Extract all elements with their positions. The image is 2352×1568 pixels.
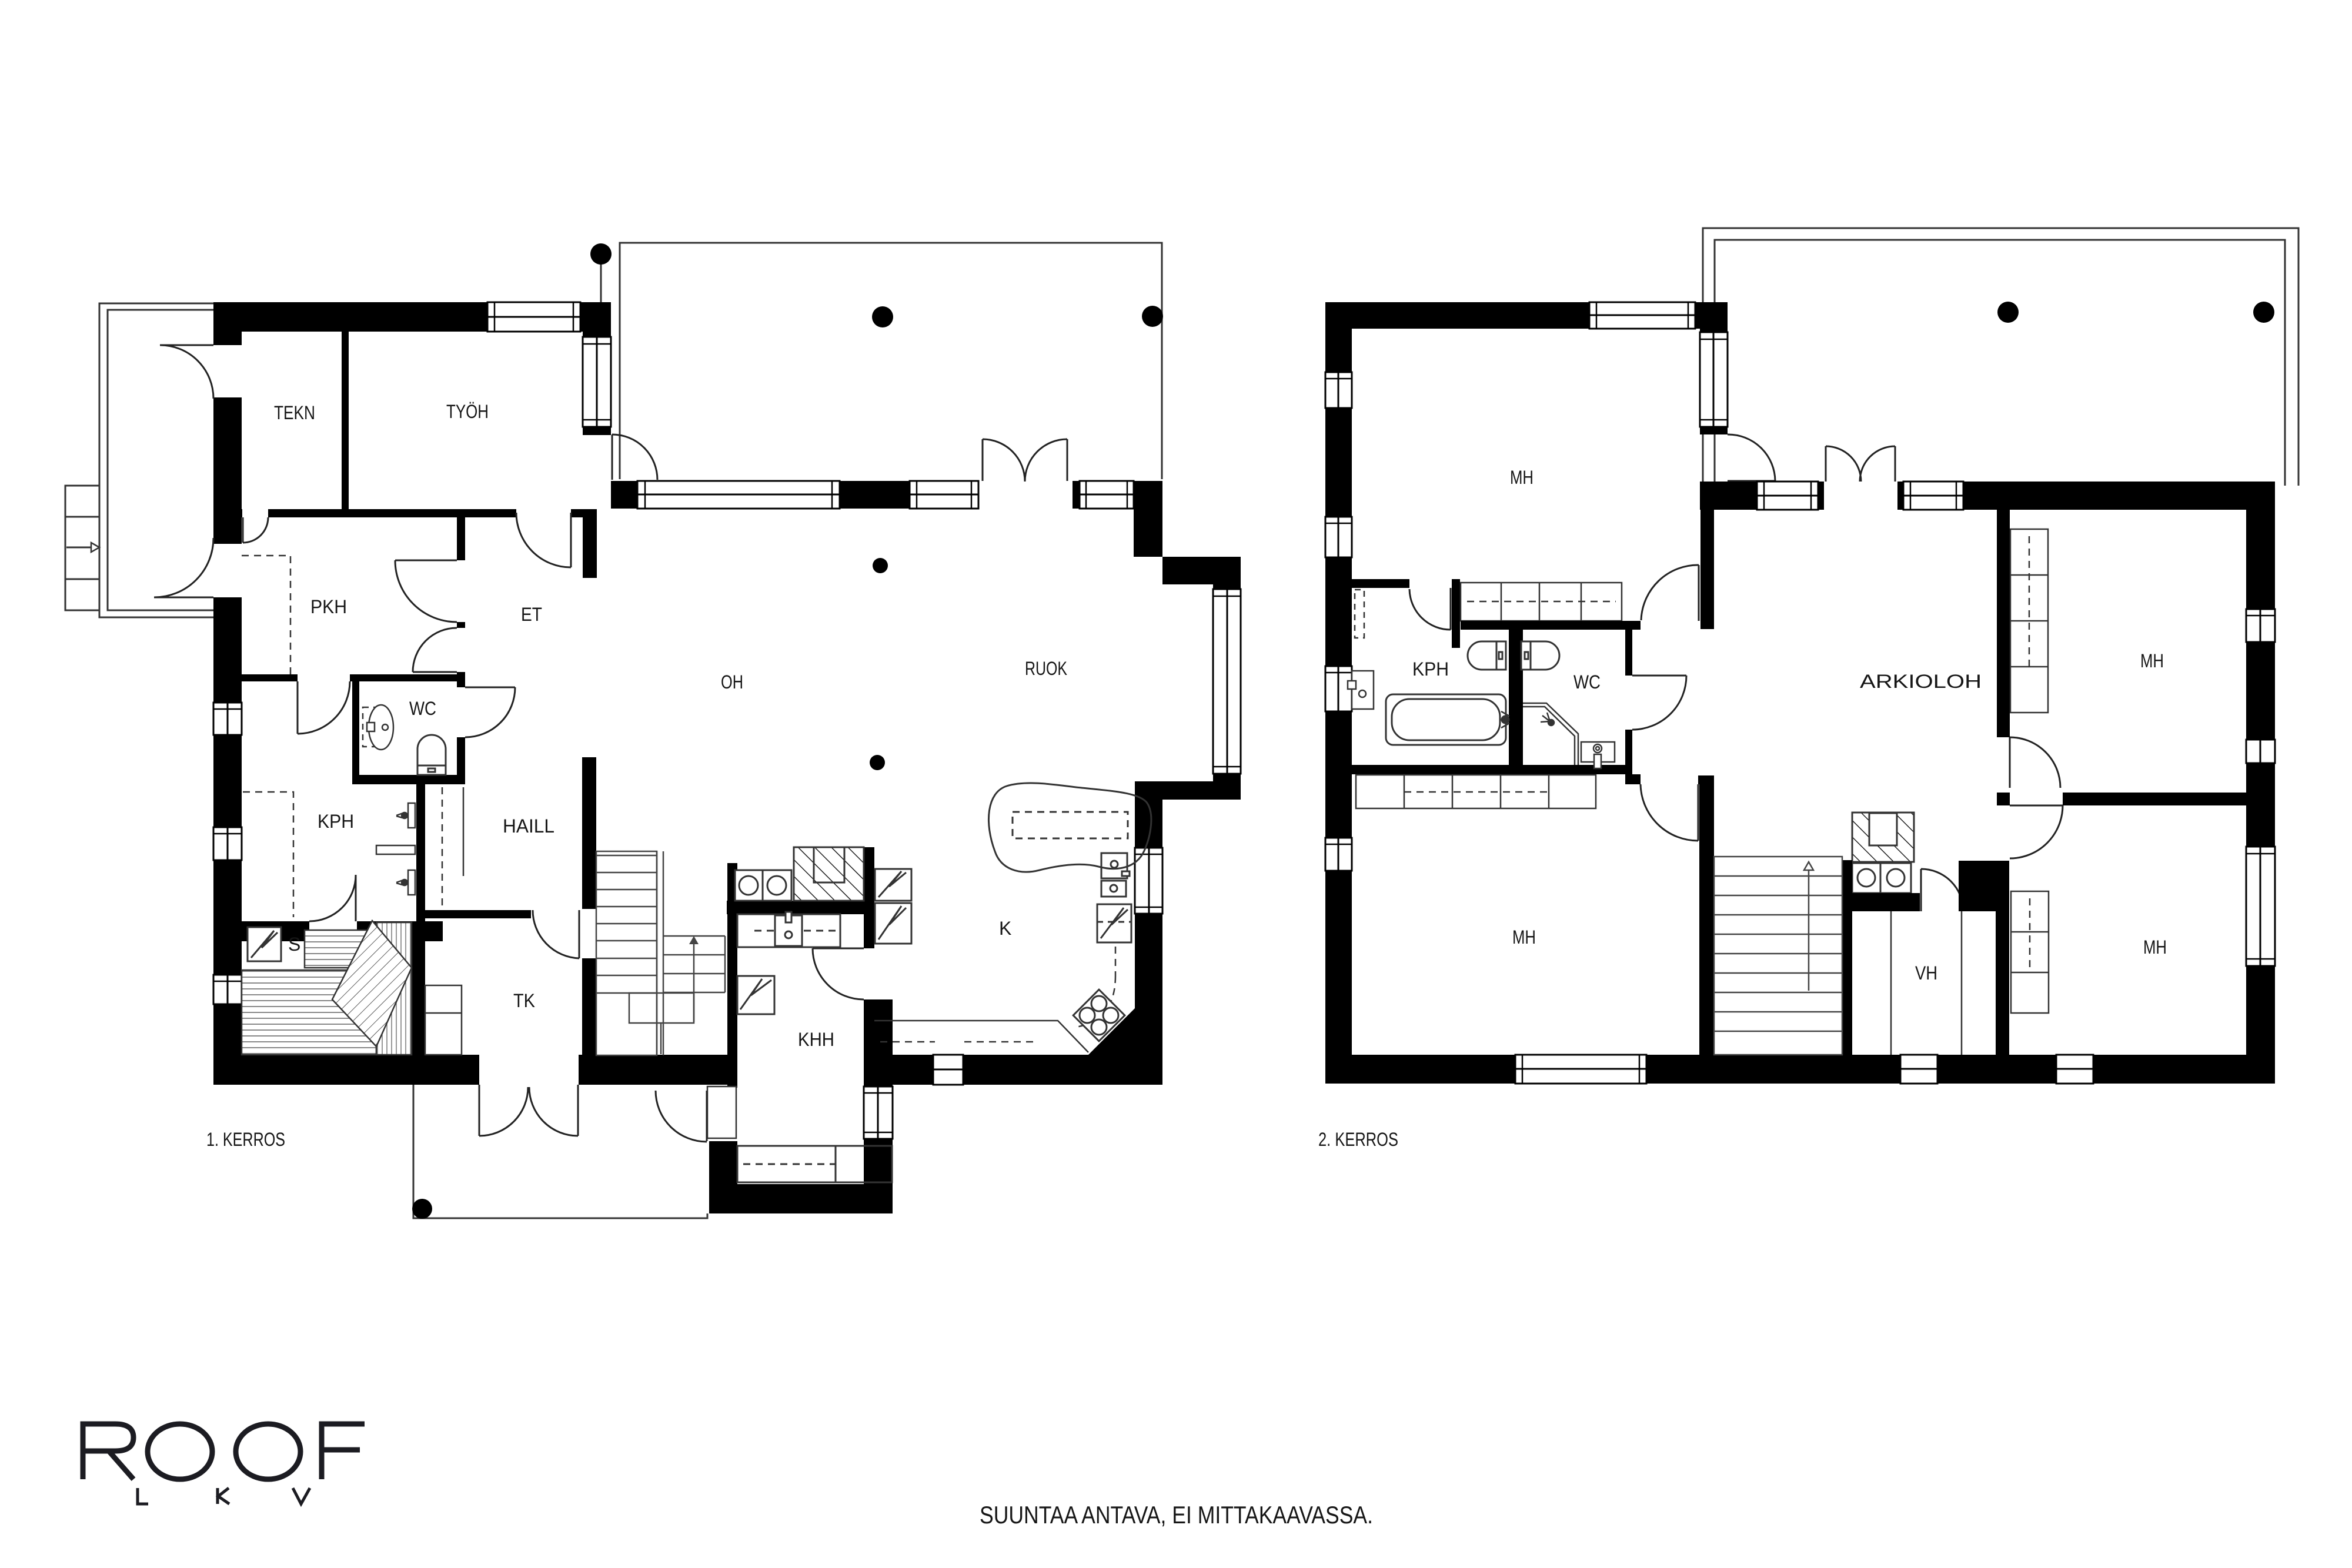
svg-text:ET: ET [521,604,542,625]
svg-text:HAILL: HAILL [503,815,554,837]
svg-text:KPH: KPH [318,811,354,832]
svg-text:SUUNTAA ANTAVA, EI MITTAKAAVAS: SUUNTAA ANTAVA, EI MITTAKAAVASSA. [980,1501,1373,1529]
svg-text:MH: MH [2143,937,2167,958]
svg-text:2. KERROS: 2. KERROS [1318,1129,1398,1150]
svg-text:VH: VH [1915,962,1937,984]
svg-text:K: K [999,918,1011,939]
svg-text:TYÖH: TYÖH [446,401,489,422]
svg-text:TK: TK [513,990,535,1011]
svg-text:S: S [288,934,300,955]
svg-text:MH: MH [2140,650,2164,671]
svg-text:MH: MH [1510,467,1534,488]
svg-text:MH: MH [1512,927,1536,948]
svg-text:RUOK: RUOK [1025,658,1067,679]
svg-text:OH: OH [721,671,743,693]
svg-text:ARKIOLOH: ARKIOLOH [1860,671,1982,692]
svg-text:TEKN: TEKN [274,402,315,423]
svg-text:KPH: KPH [1412,658,1449,680]
svg-text:PKH: PKH [310,596,347,617]
svg-text:1. KERROS: 1. KERROS [206,1129,285,1150]
svg-text:WC: WC [409,698,436,719]
svg-text:KHH: KHH [798,1029,834,1050]
svg-text:WC: WC [1573,671,1601,693]
